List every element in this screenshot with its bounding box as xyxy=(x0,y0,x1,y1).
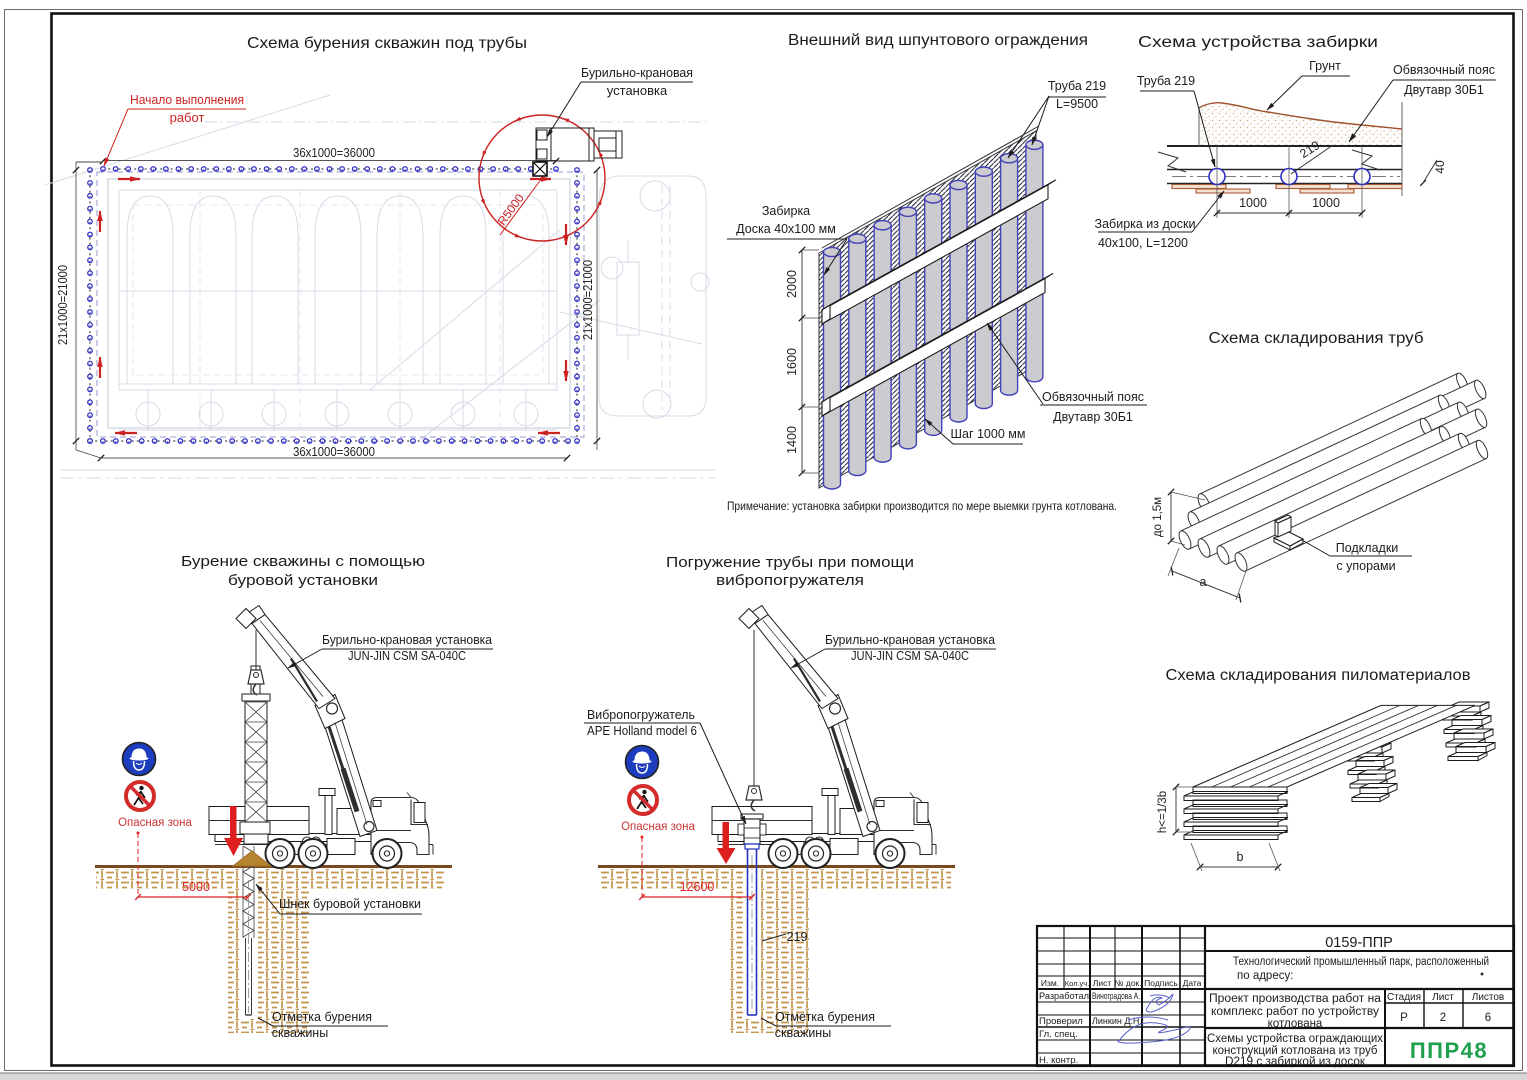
svg-text:вибропогружателя: вибропогружателя xyxy=(716,573,864,589)
svg-text:Проект производства работ на: Проект производства работ на xyxy=(1209,993,1382,1005)
svg-text:21x1000=21000: 21x1000=21000 xyxy=(55,265,70,345)
svg-text:Схема складирования труб: Схема складирования труб xyxy=(1209,330,1424,347)
svg-text:5000: 5000 xyxy=(182,880,210,894)
svg-text:Схема устройства забирки: Схема устройства забирки xyxy=(1138,34,1378,51)
svg-text:Труба 219: Труба 219 xyxy=(1137,74,1195,88)
svg-text:буровой установки: буровой установки xyxy=(228,573,378,589)
svg-text:ППР48: ППР48 xyxy=(1410,1038,1488,1063)
svg-text:установка: установка xyxy=(607,83,668,98)
svg-text:Бурильно-крановая установка: Бурильно-крановая установка xyxy=(825,633,995,647)
svg-text:Лист: Лист xyxy=(1093,978,1112,988)
svg-text:Проверил: Проверил xyxy=(1039,1016,1083,1027)
svg-text:Опасная зона: Опасная зона xyxy=(118,817,192,829)
svg-text:Отметка бурения: Отметка бурения xyxy=(272,1010,372,1024)
svg-text:котлована: котлована xyxy=(1268,1018,1323,1030)
svg-text:219: 219 xyxy=(787,930,808,944)
svg-text:Грунт: Грунт xyxy=(1309,59,1341,73)
svg-text:a: a xyxy=(1200,575,1207,589)
svg-text:JUN-JIN CSM SA-040C: JUN-JIN CSM SA-040C xyxy=(348,649,466,663)
svg-text:Лист: Лист xyxy=(1432,992,1454,1003)
svg-text:работ: работ xyxy=(170,110,205,125)
svg-text:21x1000=21000: 21x1000=21000 xyxy=(580,260,595,340)
svg-text:Дата: Дата xyxy=(1183,978,1202,988)
svg-text:Примечание: установка забирки: Примечание: установка забирки производит… xyxy=(727,501,1117,513)
svg-text:Линкин Д.Н.: Линкин Д.Н. xyxy=(1092,1016,1142,1026)
svg-text:2: 2 xyxy=(1440,1012,1446,1024)
svg-text:40: 40 xyxy=(1433,160,1447,174)
svg-text:Схема складирования пиломатери: Схема складирования пиломатериалов xyxy=(1166,667,1471,684)
svg-text:Виноградова А.: Виноградова А. xyxy=(1092,991,1140,1001)
svg-text:2000: 2000 xyxy=(785,270,799,298)
svg-text:Начало выполнения: Начало выполнения xyxy=(130,92,244,107)
svg-text:с упорами: с упорами xyxy=(1336,559,1395,573)
svg-text:Листов: Листов xyxy=(1472,992,1505,1003)
svg-text:до 1,5м: до 1,5м xyxy=(1152,497,1164,537)
svg-text:Стадия: Стадия xyxy=(1387,992,1421,1003)
svg-text:Схемы устройства ограждающих: Схемы устройства ограждающих xyxy=(1207,1033,1383,1045)
svg-text:D219 с забиркой из досок: D219 с забиркой из досок xyxy=(1225,1056,1366,1068)
svg-text:скважины: скважины xyxy=(775,1026,831,1040)
svg-text:Схема бурения скважин под труб: Схема бурения скважин под трубы xyxy=(247,35,527,52)
svg-text:0159-ППР: 0159-ППР xyxy=(1325,935,1393,951)
svg-text:Бурильно-крановая: Бурильно-крановая xyxy=(581,65,693,80)
svg-text:скважины: скважины xyxy=(272,1026,328,1040)
svg-text:h<=1/3b: h<=1/3b xyxy=(1157,791,1169,833)
svg-text:APE Holland model 6: APE Holland model 6 xyxy=(587,724,697,738)
svg-text:Отметка бурения: Отметка бурения xyxy=(775,1010,875,1024)
svg-text:Забирка из доски: Забирка из доски xyxy=(1095,217,1196,231)
svg-text:Подкладки: Подкладки xyxy=(1336,541,1399,555)
svg-text:Двутавр 30Б1: Двутавр 30Б1 xyxy=(1053,410,1133,424)
svg-text:№ док.: № док. xyxy=(1114,978,1141,988)
svg-text:1400: 1400 xyxy=(785,426,799,454)
svg-text:6: 6 xyxy=(1485,1012,1491,1024)
svg-text:Двутавр 30Б1: Двутавр 30Б1 xyxy=(1404,83,1484,97)
svg-text:L=9500: L=9500 xyxy=(1056,97,1098,111)
svg-text:36x1000=36000: 36x1000=36000 xyxy=(293,145,375,160)
svg-text:Р: Р xyxy=(1400,1012,1408,1024)
svg-text:Кол.уч.: Кол.уч. xyxy=(1065,979,1090,988)
svg-text:Опасная зона: Опасная зона xyxy=(621,821,695,833)
svg-text:Шаг 1000 мм: Шаг 1000 мм xyxy=(951,427,1026,441)
svg-text:Труба 219: Труба 219 xyxy=(1048,79,1106,93)
svg-text:по адресу:: по адресу: xyxy=(1237,970,1293,982)
svg-text:Бурение скважины с помощью: Бурение скважины с помощью xyxy=(181,554,425,570)
svg-text:комплекс работ по устройству: комплекс работ по устройству xyxy=(1211,1006,1379,1018)
svg-text:Разработал: Разработал xyxy=(1039,991,1089,1002)
svg-text:Обвязочный пояс: Обвязочный пояс xyxy=(1393,63,1495,77)
svg-text:b: b xyxy=(1237,850,1244,864)
svg-text:Н. контр.: Н. контр. xyxy=(1039,1055,1078,1066)
svg-text:Обвязочный пояс: Обвязочный пояс xyxy=(1042,390,1144,404)
svg-text:JUN-JIN CSM SA-040C: JUN-JIN CSM SA-040C xyxy=(851,649,969,663)
svg-text:Технологический промышленный п: Технологический промышленный парк, распо… xyxy=(1233,956,1489,968)
svg-text:Бурильно-крановая установка: Бурильно-крановая установка xyxy=(322,633,492,647)
svg-text:12600: 12600 xyxy=(680,880,715,894)
svg-text:1000: 1000 xyxy=(1312,196,1340,210)
svg-text:Погружение трубы при помощи: Погружение трубы при помощи xyxy=(666,555,914,571)
svg-text:Изм.: Изм. xyxy=(1041,978,1059,988)
svg-text:Забирка: Забирка xyxy=(762,204,810,218)
svg-text:1000: 1000 xyxy=(1239,196,1267,210)
svg-text:Доска 40x100 мм: Доска 40x100 мм xyxy=(736,222,836,236)
svg-text:Внешний вид шпунтового огражде: Внешний вид шпунтового ограждения xyxy=(788,32,1088,49)
svg-text:Шнек буровой установки: Шнек буровой установки xyxy=(279,897,421,911)
svg-text:Вибропогружатель: Вибропогружатель xyxy=(587,708,695,722)
svg-text:Гл. спец.: Гл. спец. xyxy=(1039,1029,1078,1040)
svg-text:40x100, L=1200: 40x100, L=1200 xyxy=(1098,236,1188,250)
svg-text:Подпись: Подпись xyxy=(1144,978,1178,988)
svg-text:36x1000=36000: 36x1000=36000 xyxy=(293,444,375,459)
svg-text:1600: 1600 xyxy=(785,348,799,376)
